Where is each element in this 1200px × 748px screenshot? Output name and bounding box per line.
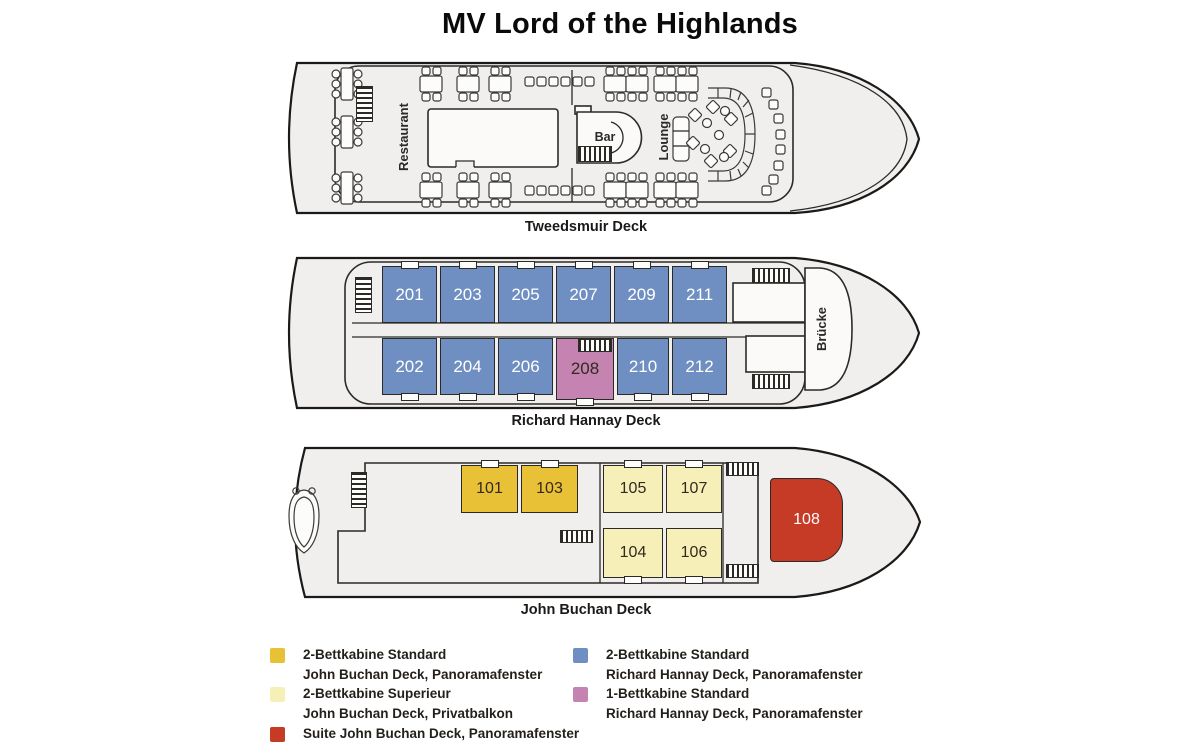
legend-swatch-gold (270, 648, 285, 663)
legend-subtitle: John Buchan Deck, Privatbalkon (303, 704, 513, 724)
cabin-101: 101 (461, 465, 518, 513)
cabin-209: 209 (614, 266, 669, 323)
legend-item: 2-Bettkabine Standard John Buchan Deck, … (270, 645, 579, 684)
cabin-107: 107 (666, 465, 722, 513)
bar-label: Bar (585, 130, 625, 144)
cabin-106: 106 (666, 528, 722, 578)
cabin-105: 105 (603, 465, 663, 513)
cabin-212: 212 (672, 338, 727, 395)
legend-subtitle: Richard Hannay Deck, Panoramafenster (606, 704, 863, 724)
deck-plan: MV Lord of the Highlands (0, 0, 1200, 748)
legend-swatch-pale-yellow (270, 687, 285, 702)
cabin-207: 207 (556, 266, 611, 323)
cabin-104: 104 (603, 528, 663, 578)
legend-title: 2-Bettkabine Superieur (303, 684, 513, 704)
stairs (726, 462, 759, 476)
cabin-202: 202 (382, 338, 437, 395)
legend-title: 2-Bettkabine Standard (606, 645, 863, 665)
legend-swatch-red (270, 727, 285, 742)
stairs (560, 530, 593, 543)
legend-item: Suite John Buchan Deck, Panoramafenster (270, 724, 579, 744)
stairs (355, 277, 372, 313)
galley-block (428, 109, 558, 167)
cabin-203: 203 (440, 266, 495, 323)
cabin-210: 210 (617, 338, 669, 395)
stairs (351, 472, 367, 508)
deck-caption-tweedsmuir: Tweedsmuir Deck (286, 219, 886, 235)
cabin-205: 205 (498, 266, 553, 323)
cabin-206: 206 (498, 338, 553, 395)
room (733, 283, 805, 322)
stairs (578, 146, 612, 162)
legend-title: 1-Bettkabine Standard (606, 684, 863, 704)
page-title: MV Lord of the Highlands (20, 8, 1200, 41)
room (746, 336, 805, 372)
stairs (356, 86, 373, 122)
stairs (752, 374, 790, 389)
legend-column-left: 2-Bettkabine Standard John Buchan Deck, … (270, 645, 579, 744)
legend-item: 2-Bettkabine Superieur John Buchan Deck,… (270, 684, 579, 723)
legend-title: 2-Bettkabine Standard (303, 645, 542, 665)
cabin-103: 103 (521, 465, 578, 513)
legend-column-right: 2-Bettkabine Standard Richard Hannay Dec… (573, 645, 863, 724)
restaurant-label: Restaurant (396, 77, 416, 197)
cabin-211: 211 (672, 266, 727, 323)
cabin-201: 201 (382, 266, 437, 323)
legend-subtitle: John Buchan Deck, Panoramafenster (303, 665, 542, 685)
stairs (752, 268, 790, 283)
deck-caption-john-buchan: John Buchan Deck (286, 602, 886, 618)
legend-subtitle: Richard Hannay Deck, Panoramafenster (606, 665, 863, 685)
legend-swatch-pink (573, 687, 588, 702)
bridge-label: Brücke (814, 269, 834, 389)
legend-swatch-blue (573, 648, 588, 663)
cabin-204: 204 (440, 338, 495, 395)
stairs (578, 339, 612, 352)
legend-item: 1-Bettkabine Standard Richard Hannay Dec… (573, 684, 863, 723)
legend-title: Suite John Buchan Deck, Panoramafenster (303, 724, 579, 744)
legend-item: 2-Bettkabine Standard Richard Hannay Dec… (573, 645, 863, 684)
stairs (726, 564, 759, 578)
lounge-label: Lounge (656, 77, 676, 197)
cabin-108: 108 (770, 478, 843, 562)
deck-caption-richard-hannay: Richard Hannay Deck (286, 413, 886, 429)
